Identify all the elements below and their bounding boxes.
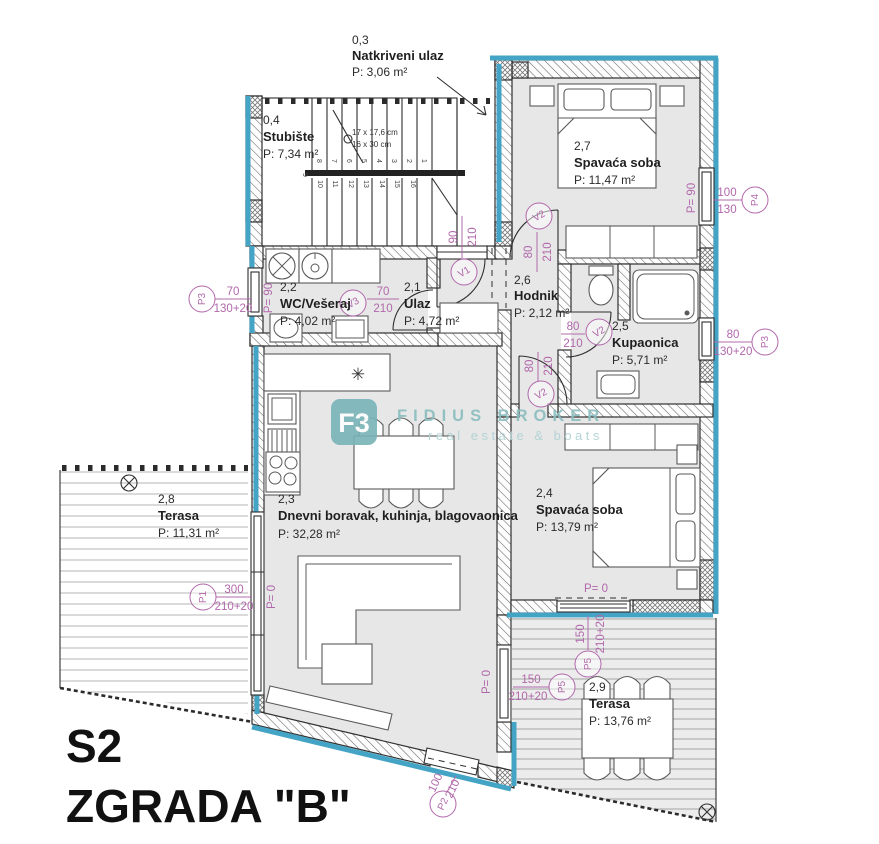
- dim-height: 210: [444, 778, 463, 800]
- cupboard: [332, 249, 380, 283]
- wall: [427, 258, 440, 288]
- room-label-stubiste: 0,4 Stubište P: 7,34 m²: [263, 113, 318, 161]
- room-name: Spavaća soba: [536, 502, 623, 517]
- room-number: 2,9: [589, 680, 606, 694]
- step-number: 7: [330, 159, 337, 163]
- room-area: P: 2,12 m²: [514, 306, 569, 320]
- nightstand: [677, 445, 697, 464]
- pillow: [676, 474, 695, 514]
- parapet-label: P= 90: [686, 183, 698, 213]
- room-name: WC/Vešeraj: [280, 296, 351, 311]
- room-number: 2,7: [574, 139, 591, 153]
- coffee-table: [322, 644, 372, 684]
- dim-width: 80: [727, 329, 740, 341]
- tag-p3: P3: [197, 292, 208, 305]
- wall: [438, 333, 502, 346]
- dim-height: 210: [563, 338, 582, 350]
- step-number: 13: [362, 180, 369, 188]
- shower-drain: [685, 311, 690, 316]
- room-name: Natkriveni ulaz: [352, 48, 444, 63]
- parapet-label: P= 90: [263, 283, 275, 313]
- chair: [419, 488, 443, 508]
- pillow: [564, 89, 604, 110]
- room-number: 2,2: [280, 280, 297, 294]
- step-number: 10: [316, 180, 323, 188]
- step-number: 12: [347, 180, 354, 188]
- room-name: Ulaz: [404, 296, 431, 311]
- step-number: 11: [331, 180, 338, 187]
- step-number: 1: [420, 159, 427, 163]
- tag-p5: P5: [557, 680, 568, 693]
- chair: [389, 488, 413, 508]
- terrace-28-deck: [60, 470, 248, 714]
- room-area: P: 11,31 m²: [158, 526, 219, 540]
- floor-plan-canvas: 17 x 17,6 cm 16 x 30 cm 1 2 3 4 5 6 7 8 …: [0, 0, 879, 844]
- room-area: P: 13,79 m²: [536, 520, 598, 534]
- nightstand: [660, 86, 684, 106]
- agency-tagline: real estate & boats: [428, 428, 603, 443]
- tag-p3: P3: [760, 335, 771, 348]
- dim-height: 210: [373, 303, 392, 315]
- wall-corner: [700, 248, 714, 270]
- room-number: 2,8: [158, 492, 175, 506]
- pillow: [611, 89, 651, 110]
- room-number: 2,6: [514, 273, 531, 287]
- room-name: Dnevni boravak, kuhinja, blagovaonica: [278, 508, 519, 523]
- room-name: Spavaća soba: [574, 155, 661, 170]
- step-number: 4: [375, 159, 382, 163]
- dim-height: 130+20: [714, 346, 753, 358]
- room-number: 2,5: [612, 319, 629, 333]
- toilet-tank: [589, 266, 613, 275]
- wall: [700, 60, 714, 168]
- toilet: [589, 275, 613, 305]
- pillow: [676, 521, 695, 561]
- step-number: 14: [378, 180, 385, 188]
- kitchen-counter: [264, 354, 390, 391]
- parapet-label: P= 0: [481, 670, 493, 694]
- window-p5-south: [557, 601, 630, 612]
- parapet-label: P= 0: [266, 585, 278, 609]
- dim-height: 210+20: [595, 615, 607, 654]
- dim-width: 80: [523, 246, 535, 259]
- wall: [497, 310, 511, 417]
- tag-p1: P1: [198, 590, 209, 603]
- agency-name: FIDIUS BROKER: [397, 407, 605, 425]
- dim-height: 130: [717, 204, 736, 216]
- dim-width: 150: [521, 674, 540, 686]
- room-number: 2,1: [404, 280, 421, 294]
- step-number: 2: [405, 159, 412, 163]
- nightstand: [530, 86, 554, 106]
- building-label: ZGRADA "B": [66, 780, 351, 832]
- dim-height: 210: [467, 227, 479, 246]
- window-pane: [702, 322, 711, 356]
- room-number: 0,4: [263, 113, 280, 127]
- staircase: 17 x 17,6 cm 16 x 30 cm 1 2 3 4 5 6 7 8 …: [250, 98, 490, 246]
- dim-height: 210+20: [215, 601, 254, 613]
- wall: [511, 600, 557, 613]
- wall-corner: [700, 360, 714, 382]
- chair: [584, 758, 610, 780]
- wall: [700, 225, 714, 318]
- room-name: Terasa: [158, 508, 200, 523]
- dim-width: 300: [224, 584, 243, 596]
- chair: [644, 677, 670, 700]
- stair-riser-dim: 17 x 17,6 cm: [352, 128, 398, 137]
- stair-risers-lower: [312, 178, 432, 246]
- dim-width: 70: [227, 286, 240, 298]
- stair-tread-dim: 16 x 30 cm: [352, 140, 391, 149]
- window-pane: [702, 172, 711, 221]
- tag-p4: P4: [750, 193, 761, 206]
- room-area: P: 3,06 m²: [352, 65, 407, 79]
- room-area: P: 13,76 m²: [589, 714, 651, 728]
- stair-mid-rail: [305, 170, 465, 176]
- window-pane: [254, 516, 261, 691]
- room-name: Stubište: [263, 129, 314, 144]
- leader-arrow-icon: [437, 77, 486, 115]
- wall-corner: [633, 600, 700, 613]
- dim-width: 70: [377, 286, 390, 298]
- room-area: P: 5,71 m²: [612, 353, 667, 367]
- room-number: 0,3: [352, 33, 369, 47]
- dim-width: 150: [575, 624, 587, 643]
- dim-width: 90: [448, 231, 460, 244]
- room-area: P: 7,34 m²: [263, 147, 318, 161]
- agency-logo-text: F3: [338, 408, 370, 438]
- dim-height: 130+20: [214, 303, 253, 315]
- wall: [497, 615, 511, 645]
- room-area: P: 32,28 m²: [278, 527, 340, 541]
- dim-width: 80: [567, 321, 580, 333]
- parapet-label: P= 0: [584, 583, 608, 595]
- step-number: 16: [409, 180, 416, 188]
- chair: [614, 758, 640, 780]
- wall: [618, 264, 630, 320]
- room-number: 2,3: [278, 492, 295, 506]
- dim-width: 100: [717, 187, 736, 199]
- wardrobe: [566, 226, 697, 258]
- wall-corner: [512, 62, 528, 78]
- wall: [558, 264, 571, 312]
- step-number: 5: [360, 159, 367, 163]
- step-number: 3: [390, 159, 397, 163]
- dim-height: 210+20: [509, 691, 548, 703]
- wall: [497, 722, 511, 752]
- wall-corner: [700, 560, 714, 600]
- nightstand: [677, 570, 697, 589]
- room-area: P: 4,02 m²: [280, 314, 335, 328]
- room-name: Hodnik: [514, 288, 559, 303]
- floor-plan-drawing: 17 x 17,6 cm 16 x 30 cm 1 2 3 4 5 6 7 8 …: [0, 0, 879, 844]
- room-number: 2,4: [536, 486, 553, 500]
- room-name: Terasa: [589, 696, 631, 711]
- unit-label: S2: [66, 720, 122, 772]
- dim-height: 210: [543, 356, 555, 375]
- step-number: 6: [345, 159, 352, 163]
- room-area: P: 4,72 m²: [404, 314, 459, 328]
- tag-p5: P5: [583, 657, 594, 670]
- chair: [359, 488, 383, 508]
- window-pane: [500, 649, 508, 718]
- hob-icon: ✳: [351, 365, 365, 384]
- dim-width: 80: [524, 360, 536, 373]
- room-name: Kupaonica: [612, 335, 679, 350]
- step-number: 9: [301, 173, 308, 177]
- dim-height: 210: [542, 242, 554, 261]
- step-number: 15: [393, 180, 400, 188]
- room-area: P: 11,47 m²: [574, 173, 635, 187]
- chair: [644, 758, 670, 780]
